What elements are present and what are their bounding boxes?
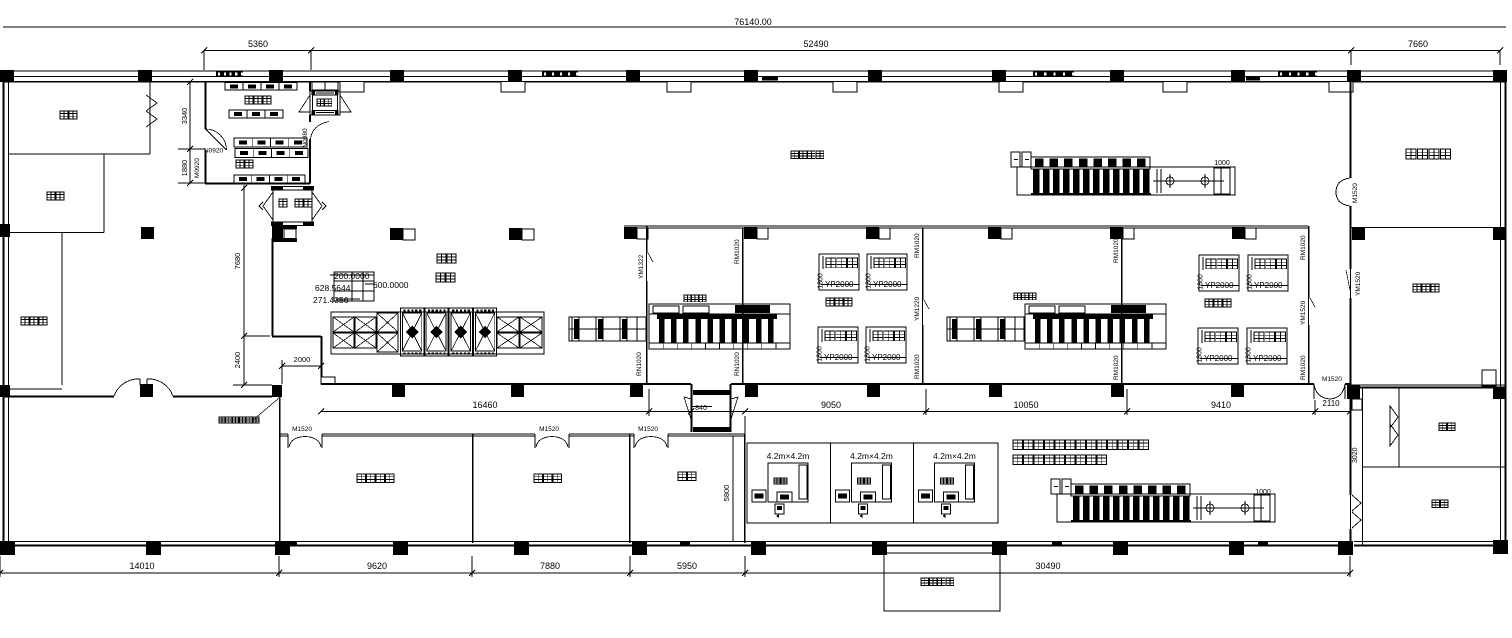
svg-text:RN1020: RN1020 — [734, 352, 741, 376]
svg-text:9620: 9620 — [367, 561, 387, 571]
svg-text:2000: 2000 — [294, 355, 311, 364]
svg-text:1800: 1800 — [1198, 274, 1205, 290]
svg-text:N0920: N0920 — [204, 148, 224, 155]
svg-text:M1520: M1520 — [1352, 183, 1359, 203]
svg-text:2400: 2400 — [233, 352, 242, 369]
svg-text:840: 840 — [695, 405, 707, 412]
svg-text:4.2m×4.2m: 4.2m×4.2m — [767, 451, 810, 461]
svg-text:628.5644: 628.5644 — [315, 283, 351, 293]
svg-text:RM1020: RM1020 — [1113, 238, 1120, 263]
svg-text:9050: 9050 — [821, 400, 841, 410]
svg-text:M0920: M0920 — [194, 158, 201, 178]
svg-text:7660: 7660 — [1408, 39, 1428, 49]
svg-text:7880: 7880 — [540, 561, 560, 571]
svg-text:1800: 1800 — [1247, 274, 1254, 290]
svg-text:RM1020: RM1020 — [1300, 355, 1307, 380]
svg-text:1000: 1000 — [1255, 489, 1271, 496]
svg-text:YM1520: YM1520 — [1300, 300, 1307, 325]
svg-text:RM1020: RM1020 — [1300, 235, 1307, 260]
svg-text:4.2m×4.2m: 4.2m×4.2m — [933, 451, 976, 461]
svg-text:14010: 14010 — [129, 561, 154, 571]
svg-text:YM1322: YM1322 — [638, 254, 645, 279]
svg-text:2110: 2110 — [1322, 399, 1340, 408]
svg-text:5950: 5950 — [677, 561, 697, 571]
svg-text:1880: 1880 — [180, 160, 189, 177]
svg-text:3340: 3340 — [180, 108, 189, 125]
svg-text:RM1020: RM1020 — [734, 239, 741, 264]
svg-text:1800: 1800 — [1246, 347, 1253, 363]
svg-text:52490: 52490 — [803, 39, 828, 49]
svg-text:YM1520: YM1520 — [1355, 271, 1362, 296]
svg-text:10050: 10050 — [1013, 400, 1038, 410]
svg-text:1800: 1800 — [818, 273, 825, 289]
svg-text:4.2m×4.2m: 4.2m×4.2m — [850, 451, 893, 461]
svg-text:9410: 9410 — [1211, 400, 1231, 410]
svg-text:3020: 3020 — [1352, 447, 1359, 463]
svg-text:5800: 5800 — [722, 485, 731, 502]
svg-text:RM1020: RM1020 — [914, 354, 921, 379]
svg-text:1000: 1000 — [1214, 160, 1230, 167]
svg-text:M1520: M1520 — [1322, 376, 1342, 383]
svg-text:600.0000: 600.0000 — [373, 280, 409, 290]
svg-text:RN1020: RN1020 — [636, 352, 643, 376]
svg-text:M1520: M1520 — [638, 426, 658, 433]
svg-text:271.4356: 271.4356 — [313, 295, 349, 305]
svg-text:RM1020: RM1020 — [914, 233, 921, 258]
svg-text:1800: 1800 — [817, 346, 824, 362]
svg-text:30490: 30490 — [1035, 561, 1060, 571]
svg-text:76140.00: 76140.00 — [734, 17, 772, 27]
svg-text:YM1220: YM1220 — [914, 296, 921, 321]
svg-text:7680: 7680 — [233, 253, 242, 270]
svg-text:RM1020: RM1020 — [1113, 355, 1120, 380]
svg-text:M1520: M1520 — [539, 426, 559, 433]
svg-text:5360: 5360 — [248, 39, 268, 49]
svg-text:1800: 1800 — [1197, 347, 1204, 363]
svg-text:1800: 1800 — [866, 273, 873, 289]
svg-text:N0980: N0980 — [302, 128, 309, 148]
svg-text:M1520: M1520 — [292, 426, 312, 433]
svg-text:200.0000: 200.0000 — [334, 271, 370, 281]
svg-text:1800: 1800 — [865, 346, 872, 362]
svg-text:16460: 16460 — [472, 400, 497, 410]
